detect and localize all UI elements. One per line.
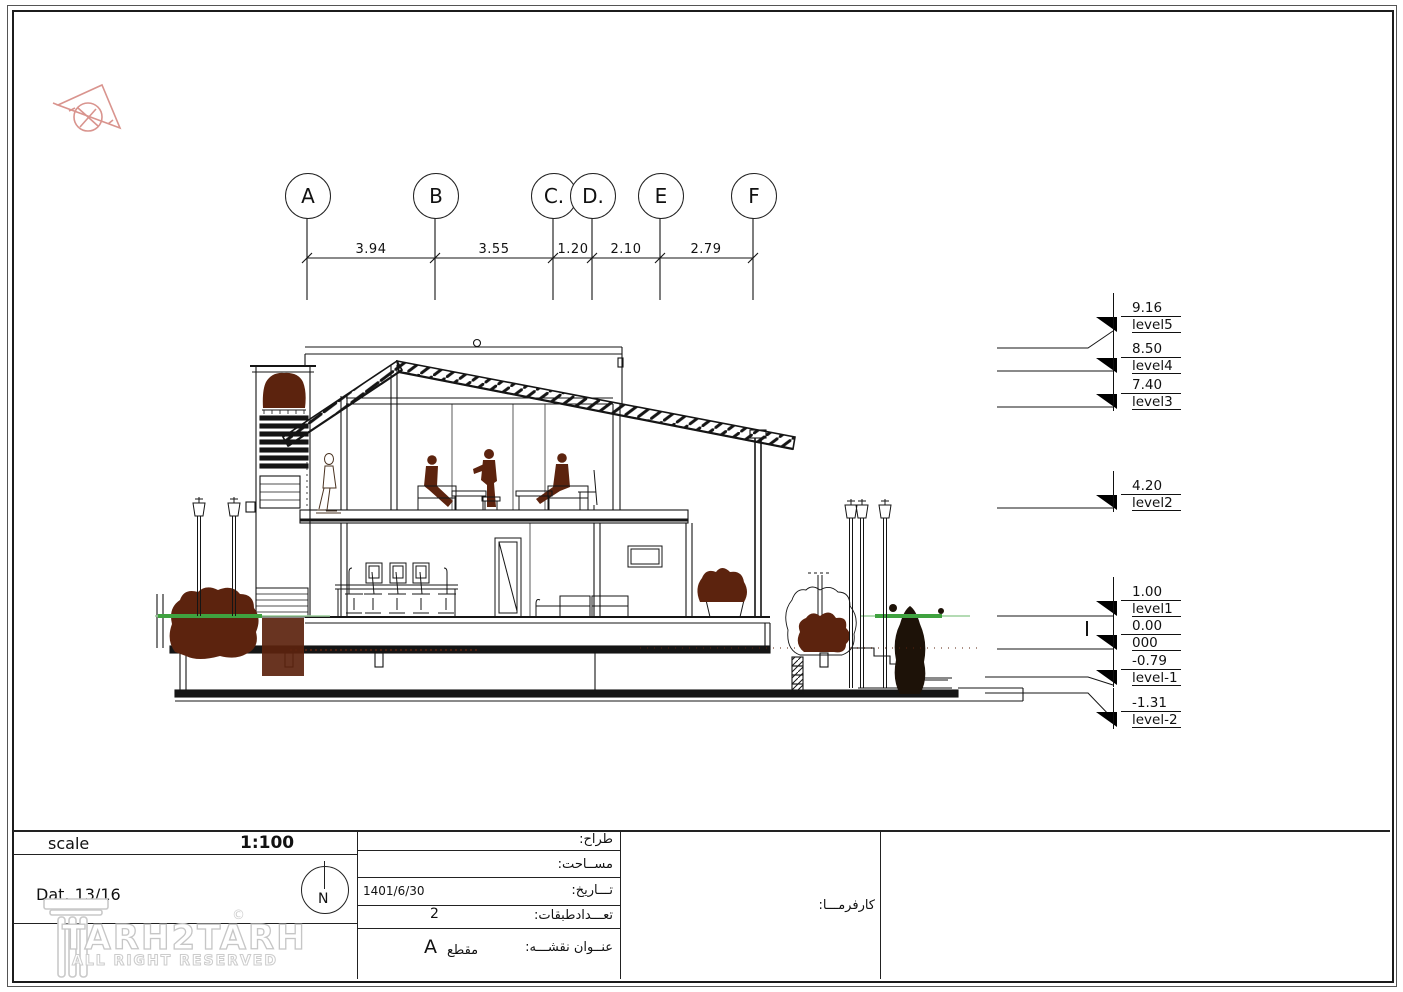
level-label: level-2 [1132, 712, 1178, 728]
north-letter: N [318, 891, 328, 907]
grid-label: B [429, 184, 443, 208]
level-value: -0.79 [1132, 653, 1167, 669]
level-value: 0.00 [1132, 618, 1162, 634]
grid-label: D. [582, 184, 604, 208]
scale-value: 1:100 [240, 833, 294, 853]
level-value: 1.00 [1132, 584, 1162, 600]
client-label: كارفرمـــا: [710, 898, 875, 913]
north-needle-icon [324, 861, 325, 889]
field-floors-label: تعـــدادطبقات: [450, 908, 613, 923]
grid-bubble-a: A [285, 173, 331, 219]
corner-compass-logo-icon [45, 75, 140, 145]
grid-bubble-d: D. [570, 173, 616, 219]
level-label: level3 [1132, 394, 1173, 410]
level-label: level4 [1132, 358, 1173, 374]
copyright-icon: © [232, 908, 245, 923]
grid-label: A [301, 184, 315, 208]
level-label: 000 [1132, 635, 1158, 651]
level-value: 9.16 [1132, 300, 1162, 316]
scale-label: scale [48, 834, 89, 853]
level-label: level-1 [1132, 670, 1178, 686]
level-label: level1 [1132, 601, 1173, 617]
level-marker-minus2: -1.31 level-2 [1095, 695, 1195, 745]
field-date-value: 1401/6/30 [363, 884, 425, 898]
grid-bubble-e: E [638, 173, 684, 219]
drawing-sheet: A B C. D. E F 3.94 3.55 1.20 2.10 2.79 9… [0, 0, 1403, 992]
grid-bubble-f: F [731, 173, 777, 219]
field-title-value: مقطع [447, 943, 487, 958]
dimension-value: 3.94 [356, 242, 387, 257]
field-designer-label: طراح: [450, 832, 613, 847]
tower [246, 366, 316, 616]
watermark-brand: TARH2TARH [62, 918, 307, 958]
grid-label: C. [544, 184, 564, 208]
north-arrow: N [301, 866, 349, 914]
dimension-value: 3.55 [479, 242, 510, 257]
dimension-value: 2.10 [611, 242, 642, 257]
level-value: 7.40 [1132, 377, 1162, 393]
grid-bubble-b: B [413, 173, 459, 219]
roof-band [283, 361, 795, 449]
grid-label: F [748, 184, 760, 208]
field-area-label: مســاحت: [450, 857, 613, 872]
dimension-value: 2.79 [691, 242, 722, 257]
level-value: -1.31 [1132, 695, 1167, 711]
vegetation [170, 568, 944, 694]
level-marker-2: 4.20 level2 [1095, 478, 1195, 528]
level-marker-3: 7.40 level3 [1095, 377, 1195, 427]
grid-lines [302, 217, 758, 300]
grid-label: E [655, 184, 668, 208]
level-value: 4.20 [1132, 478, 1162, 494]
level-label: level5 [1132, 317, 1173, 333]
watermark-tagline: ALL RIGHT RESERVED [72, 953, 278, 969]
ground-floor-furniture [256, 538, 856, 655]
field-floors-value: 2 [430, 906, 439, 922]
level-label: level2 [1132, 495, 1173, 511]
field-title-letter: A [424, 936, 437, 958]
field-date-label: تـــاريخ: [450, 883, 613, 898]
level-value: 8.50 [1132, 341, 1162, 357]
upper-floor-people [316, 449, 597, 513]
dimension-value: 1.20 [558, 242, 589, 257]
